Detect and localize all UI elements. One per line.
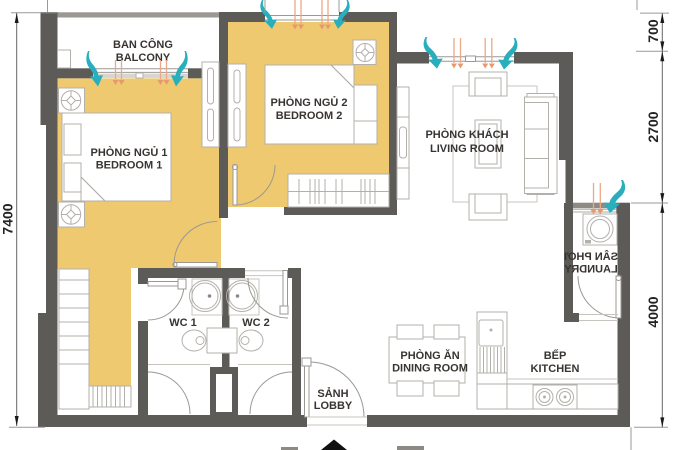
- svg-text:KITCHEN: KITCHEN: [531, 363, 580, 375]
- svg-text:PHÒNG NGỦ 1: PHÒNG NGỦ 1: [90, 146, 167, 159]
- svg-text:LIVING ROOM: LIVING ROOM: [430, 143, 504, 155]
- svg-text:BALCONY: BALCONY: [116, 52, 171, 64]
- svg-text:SÂN PHƠI: SÂN PHƠI: [564, 250, 618, 263]
- svg-text:BẾP: BẾP: [544, 349, 567, 362]
- svg-text:LAUNDRY: LAUNDRY: [564, 264, 618, 276]
- svg-text:WC 2: WC 2: [242, 317, 270, 329]
- svg-text:WC 1: WC 1: [169, 317, 197, 329]
- svg-text:DINING ROOM: DINING ROOM: [392, 363, 468, 375]
- svg-text:PHÒNG NGỦ 2: PHÒNG NGỦ 2: [270, 96, 347, 109]
- svg-text:LOBBY: LOBBY: [314, 400, 353, 412]
- svg-text:7400: 7400: [0, 203, 16, 234]
- svg-text:BEDROOM 1: BEDROOM 1: [96, 160, 163, 172]
- svg-text:2700: 2700: [645, 111, 661, 142]
- svg-text:PHÒNG KHÁCH: PHÒNG KHÁCH: [425, 128, 508, 141]
- svg-text:BAN CÔNG: BAN CÔNG: [113, 38, 173, 51]
- svg-text:SẢNH: SẢNH: [317, 387, 348, 400]
- svg-text:BEDROOM 2: BEDROOM 2: [276, 110, 343, 122]
- svg-text:PHÒNG ĂN: PHÒNG ĂN: [400, 349, 459, 362]
- svg-text:4000: 4000: [645, 296, 661, 327]
- svg-text:700: 700: [645, 19, 661, 43]
